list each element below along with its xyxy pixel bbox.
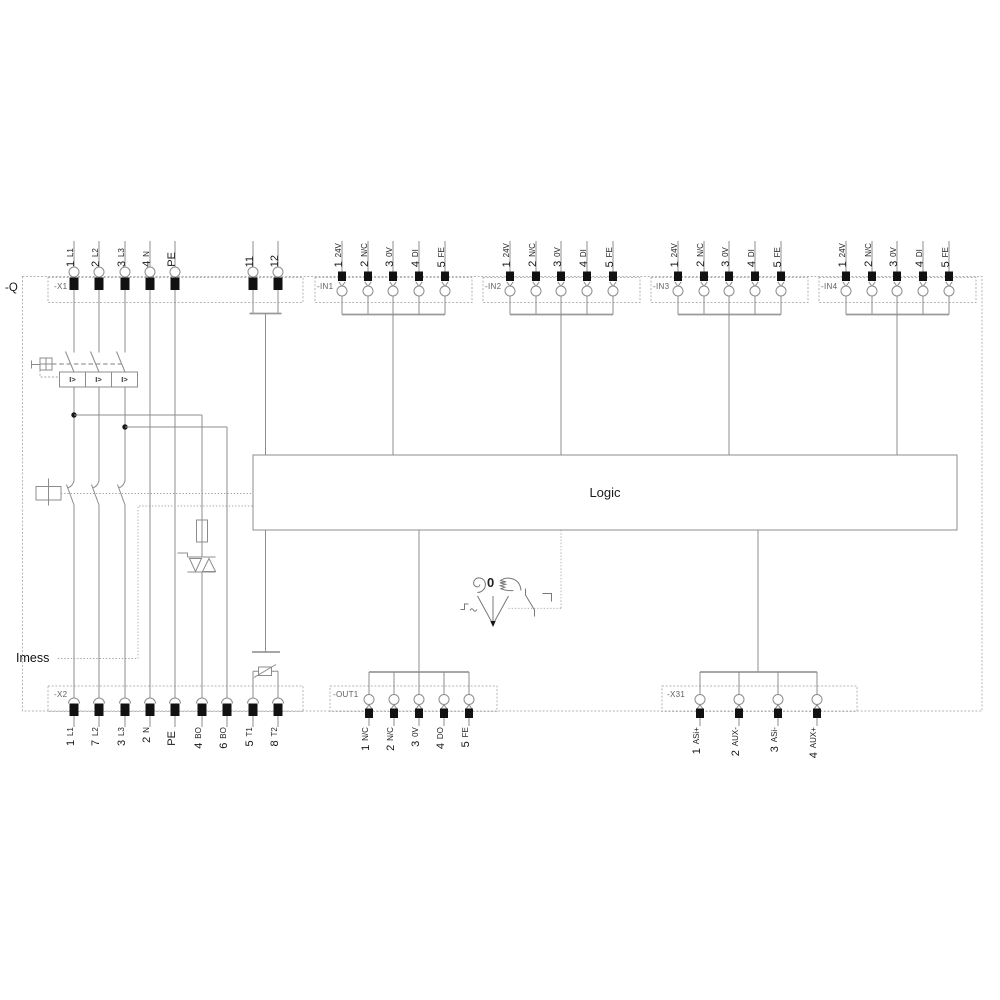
pin-label: 3L3 [113,727,131,746]
contactor [36,479,253,506]
pin-label: 124V [330,243,348,267]
selector-zero-label: 0 [487,575,494,590]
imess-line [58,506,253,659]
trip-unit-label: I> [60,372,86,387]
in3-box-label: -IN3 [653,282,669,291]
pin-label: 3ASi- [766,727,784,752]
pin-label: 4DI [743,249,761,267]
pin-label: 1N/C [357,727,375,751]
x2-box-label: -X2 [54,690,67,699]
pin-label: 2AUX- [727,727,745,756]
spiral-icon [474,578,486,593]
trip-unit-label: I> [86,372,112,387]
pin-label: 30V [717,247,735,267]
pin-label: 124V [666,243,684,267]
pin-label: 4AUX+ [805,727,823,758]
pin-label: 5FE [769,247,787,267]
pin-label: 2N/C [692,243,710,267]
pin-label: 30V [549,247,567,267]
pin-label: 4N [138,251,156,267]
pin-label: 30V [885,247,903,267]
brake-output-branch [71,412,227,698]
pin-label: 2N/C [524,243,542,267]
pin-label: 2N/C [860,243,878,267]
pin-label: 1L1 [62,248,80,267]
pin-label: 2N/C [382,727,400,751]
pin-label: 2N [138,727,156,743]
mode-selector-symbol [461,530,562,627]
in4-box-label: -IN4 [821,282,837,291]
pin-label: 7L2 [87,727,105,746]
power-lines [66,290,282,698]
pin-label: 5FE [937,247,955,267]
out1-box-label: -OUT1 [333,690,359,699]
x1-box-label: -X1 [54,282,67,291]
pin-label: 2N/C [356,243,374,267]
thermistor-branch [252,652,280,698]
pin-label: 4DO [432,727,450,749]
pin-label: 5FE [601,247,619,267]
x31-box-label: -X31 [667,690,685,699]
pin-label: PE [163,727,181,746]
pin-label: 1L1 [62,727,80,746]
output-buses [369,530,817,672]
hand-icon [500,578,521,590]
pin-label: 1ASi+ [688,727,706,754]
enclosure-label: -Q [5,282,18,294]
pin-label: PE [163,248,181,267]
imess-label: Imess [16,651,49,665]
input-buses [342,315,949,456]
pin-label: 4BO [190,727,208,749]
pin-label: 124V [834,243,852,267]
feedback-switch [526,589,552,617]
pin-label: 3L3 [113,248,131,267]
pin-label: 5FE [433,247,451,267]
logic-label: Logic [253,455,957,530]
terminals-out1 [364,672,474,726]
pin-label: 6BO [215,727,233,749]
pin-label: 4DI [575,249,593,267]
pin-label: 124V [498,243,516,267]
pin-label: 2L2 [87,248,105,267]
terminals-x2 [69,698,284,727]
pin-label: 4DI [911,249,929,267]
pin-label: 11 [241,252,259,267]
in1-box-label: -IN1 [317,282,333,291]
selector-needle [478,596,509,622]
pin-label: 5T1 [241,727,259,746]
pulse-icon [461,604,477,611]
pin-label: 5FE [457,727,475,747]
pin-label: 30V [407,727,425,747]
pin-label: 30V [381,247,399,267]
wiring-diagram-page: -Q Logic Imess 0 I> I> I> -X1 -IN1 -IN2 … [0,0,1000,1000]
trip-unit-label: I> [112,372,138,387]
pin-label: 8T2 [266,727,284,746]
pin-label: 4DI [407,249,425,267]
terminals-x31 [695,672,822,726]
pin-label: 12 [266,251,284,267]
in2-box-label: -IN2 [485,282,501,291]
